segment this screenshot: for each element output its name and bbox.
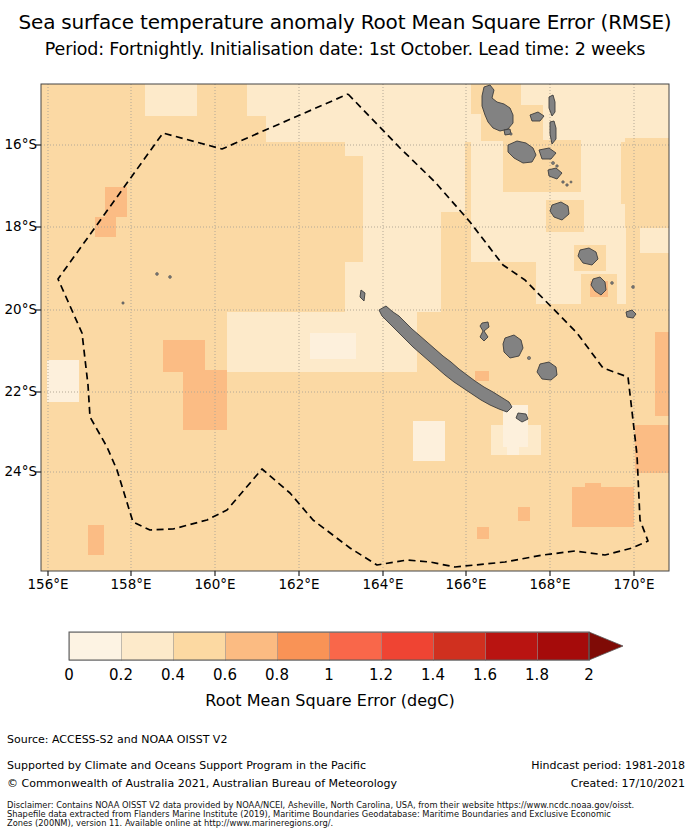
rmse-cell [585, 483, 601, 497]
rmse-cell [183, 370, 227, 430]
colorbar-segment [69, 632, 121, 660]
colorbar-segment [329, 632, 381, 660]
map-plot-area [41, 84, 669, 571]
islet-dot [611, 282, 614, 285]
y-axis-tick-label: 16°S [5, 136, 38, 152]
x-axis-tick-label: 160°E [194, 576, 235, 592]
supported-line: Supported by Climate and Oceans Support … [7, 759, 366, 772]
source-line: Source: ACCESS-S2 and NOAA OISST V2 [7, 733, 227, 746]
colorbar-tick-label: 0.6 [213, 666, 237, 684]
x-axis-tick-label: 170°E [613, 576, 654, 592]
x-axis-tick-label: 166°E [445, 576, 486, 592]
colorbar-segment [173, 632, 225, 660]
y-axis-tick-label: 20°S [5, 301, 38, 317]
rmse-map [41, 84, 669, 571]
colorbar-tick-label: 1.4 [421, 666, 445, 684]
islet-dot [510, 133, 512, 135]
y-axis-tick-label: 24°S [5, 463, 38, 479]
rmse-cell [163, 340, 205, 372]
islet-dot [156, 273, 159, 276]
colorbar-tick-label: 0.2 [109, 666, 133, 684]
rmse-cell [572, 487, 634, 527]
x-axis-tick-label: 158°E [110, 576, 151, 592]
colorbar-tick-label: 1.8 [525, 666, 549, 684]
rmse-cell [145, 84, 197, 116]
colorbar [0, 630, 690, 662]
colorbar-segment [381, 632, 433, 660]
rmse-cell [655, 332, 669, 416]
colorbar-segment [225, 632, 277, 660]
colorbar-tick-label: 2 [584, 666, 594, 684]
rmse-cell [507, 438, 519, 455]
islet-dot [556, 165, 559, 168]
x-axis-tick-label: 156°E [27, 576, 68, 592]
created-date: Created: 17/10/2021 [571, 777, 685, 790]
colorbar-segment [277, 632, 329, 660]
islet-dot [632, 286, 635, 289]
copyright-line: © Commonwealth of Australia 2021, Austra… [7, 777, 397, 790]
rmse-cell [266, 116, 669, 142]
islet-dot [552, 162, 555, 165]
colorbar-segment [433, 632, 485, 660]
islet-dot [169, 276, 172, 279]
rmse-cell [105, 187, 127, 217]
colorbar-tick-label: 1 [324, 666, 334, 684]
colorbar-tick-label: 0.8 [265, 666, 289, 684]
colorbar-tick-label: 1.2 [369, 666, 393, 684]
islet-dot [527, 356, 530, 359]
disclaimer-line3: Zones (200NM), version 11. Available onl… [7, 818, 333, 828]
hindcast-period: Hindcast period: 1981-2018 [531, 759, 685, 772]
rmse-cell [88, 525, 104, 555]
colorbar-segment [537, 632, 589, 660]
rmse-cell [47, 360, 79, 402]
islet-dot [566, 184, 569, 187]
rmse-cell [287, 156, 363, 262]
rmse-cell [518, 507, 530, 521]
colorbar-tick-label: 0 [64, 666, 74, 684]
colorbar-caption: Root Mean Square Error (degC) [205, 691, 454, 710]
colorbar-segment [485, 632, 537, 660]
colorbar-tick-label: 0.4 [161, 666, 185, 684]
colorbar-segment [121, 632, 173, 660]
islet-dot [562, 181, 565, 184]
rmse-cell [475, 371, 489, 381]
islet-dot [570, 181, 572, 183]
x-axis-tick-label: 162°E [278, 576, 319, 592]
y-axis-tick-label: 18°S [5, 218, 38, 234]
colorbar-tick-label: 1.6 [473, 666, 497, 684]
figure-title-line2: Period: Fortnightly. Initialisation date… [45, 39, 645, 59]
island-pentecost [550, 121, 556, 144]
rmse-cell [625, 138, 669, 228]
figure-title-line1: Sea surface temperature anomaly Root Mea… [19, 10, 672, 34]
y-axis-tick-label: 22°S [5, 383, 38, 399]
rmse-cell [413, 421, 445, 461]
x-axis-tick-label: 164°E [362, 576, 403, 592]
rmse-cell [477, 527, 489, 539]
colorbar-extend-arrow [589, 632, 623, 660]
figure-root: { "title": { "line1": "Sea surface tempe… [0, 0, 690, 839]
rmse-cell [310, 333, 356, 359]
x-axis-tick-label: 168°E [529, 576, 570, 592]
islet-dot [122, 302, 124, 304]
rmse-cell [635, 425, 669, 473]
